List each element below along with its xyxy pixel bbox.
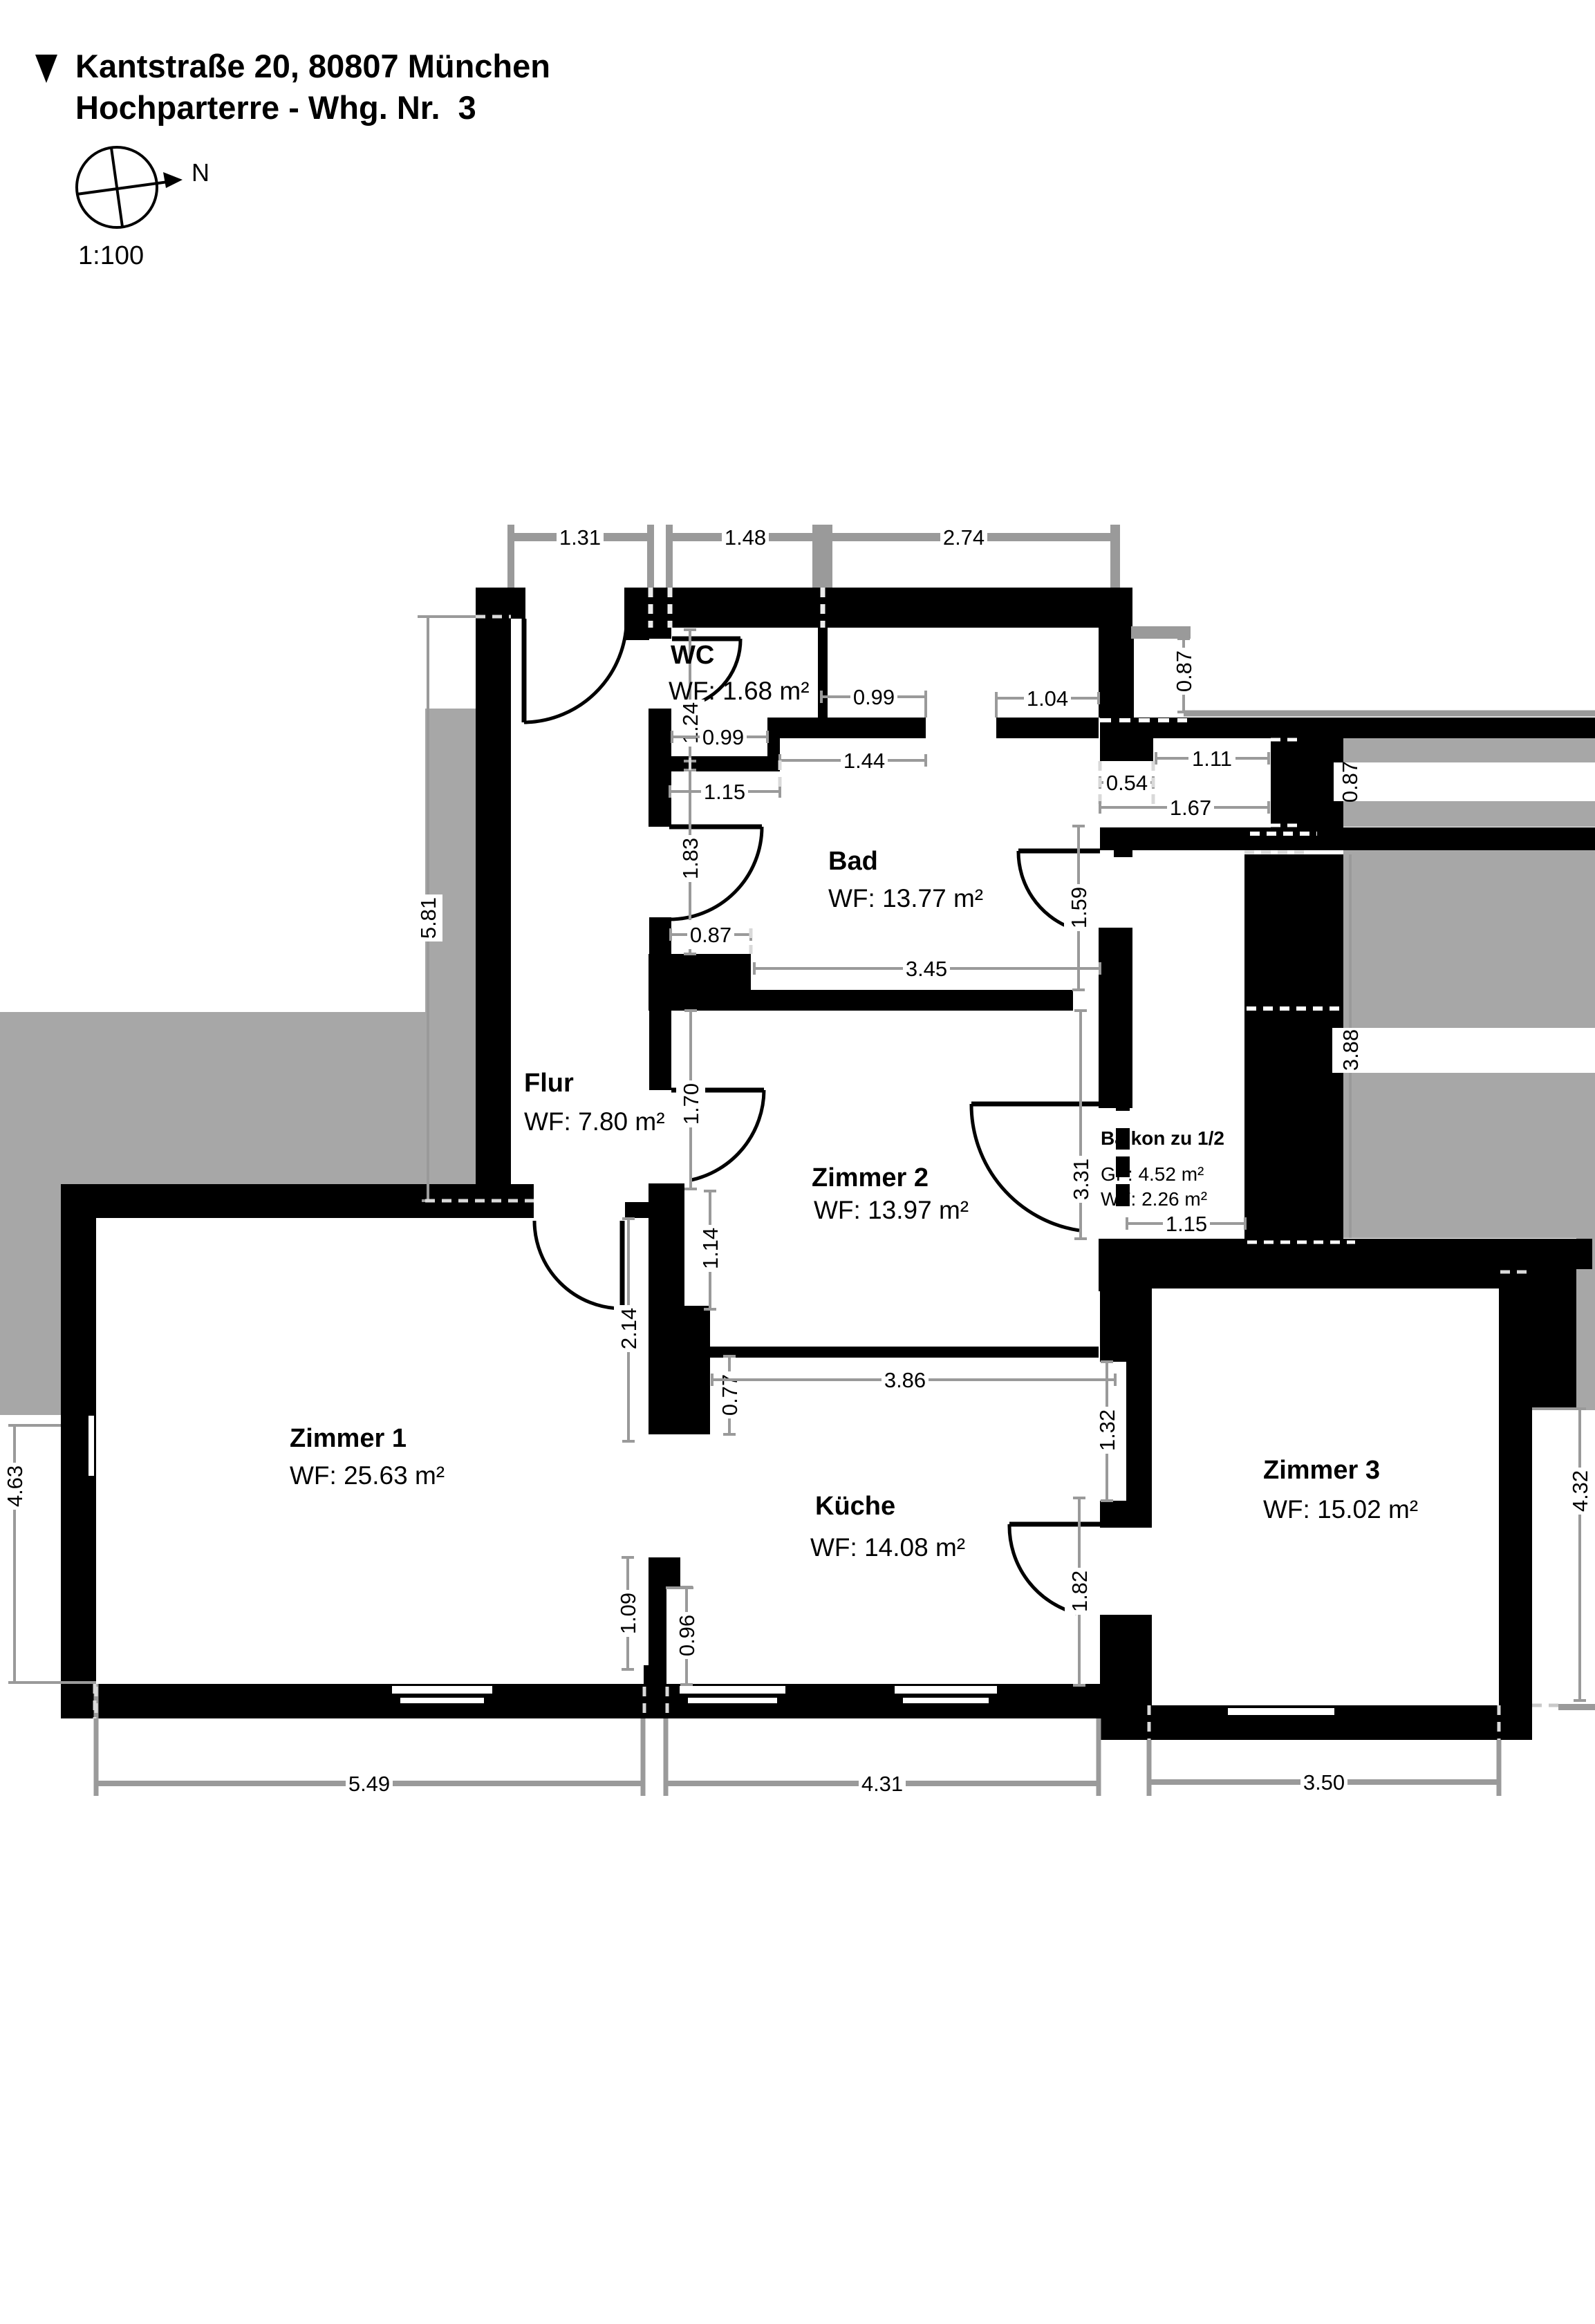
svg-text:3.88: 3.88 (1339, 1029, 1363, 1071)
svg-text:1.14: 1.14 (698, 1228, 722, 1269)
svg-text:1.11: 1.11 (1192, 747, 1232, 771)
svg-text:5.81: 5.81 (416, 897, 440, 939)
svg-text:1.15: 1.15 (704, 780, 745, 804)
svg-text:4.31: 4.31 (861, 1772, 903, 1796)
svg-text:1.67: 1.67 (1170, 796, 1211, 820)
svg-text:1.83: 1.83 (678, 838, 702, 879)
svg-text:0.54: 0.54 (1106, 771, 1148, 795)
svg-text:Hochparterre - Whg. Nr. 3: Hochparterre - Whg. Nr. 3 (75, 89, 476, 126)
svg-text:0.99: 0.99 (853, 685, 895, 709)
svg-text:4.63: 4.63 (3, 1465, 27, 1507)
svg-text:Zimmer 1: Zimmer 1 (290, 1424, 407, 1453)
svg-text:1:100: 1:100 (78, 241, 144, 270)
svg-text:0.87: 0.87 (1338, 761, 1362, 803)
svg-text:Balkon zu 1/2: Balkon zu 1/2 (1101, 1127, 1224, 1149)
svg-text:Zimmer 3: Zimmer 3 (1263, 1456, 1380, 1485)
svg-text:0.87: 0.87 (690, 923, 731, 947)
svg-text:1.04: 1.04 (1027, 686, 1068, 711)
svg-text:Bad: Bad (828, 847, 878, 876)
svg-text:2.74: 2.74 (943, 525, 985, 550)
svg-text:5.49: 5.49 (348, 1772, 390, 1796)
svg-text:0.96: 0.96 (675, 1615, 699, 1656)
svg-text:1.32: 1.32 (1095, 1409, 1119, 1451)
svg-text:Küche: Küche (815, 1492, 895, 1521)
svg-text:WF: 13.77 m²: WF: 13.77 m² (828, 884, 983, 912)
svg-text:WF: 2.26 m²: WF: 2.26 m² (1101, 1188, 1207, 1210)
svg-text:1.09: 1.09 (616, 1593, 640, 1634)
svg-text:WF: 1.68 m²: WF: 1.68 m² (669, 677, 810, 705)
svg-text:N: N (192, 158, 209, 187)
svg-text:1.15: 1.15 (1166, 1212, 1207, 1236)
svg-text:WC: WC (671, 641, 714, 670)
svg-text:WF: 14.08 m²: WF: 14.08 m² (810, 1533, 965, 1562)
svg-text:3.50: 3.50 (1303, 1770, 1345, 1794)
svg-text:1.44: 1.44 (843, 749, 885, 773)
svg-text:WF: 13.97 m²: WF: 13.97 m² (814, 1196, 969, 1224)
svg-text:1.59: 1.59 (1067, 887, 1091, 928)
svg-text:0.87: 0.87 (1172, 650, 1196, 692)
svg-text:3.86: 3.86 (884, 1368, 926, 1392)
svg-text:1.70: 1.70 (679, 1083, 703, 1125)
svg-text:Kantstraße 20, 80807 München: Kantstraße 20, 80807 München (75, 48, 550, 84)
svg-text:WF: 15.02 m²: WF: 15.02 m² (1263, 1495, 1418, 1524)
svg-text:2.14: 2.14 (617, 1308, 641, 1349)
svg-text:Zimmer 2: Zimmer 2 (812, 1163, 929, 1192)
svg-text:4.32: 4.32 (1568, 1470, 1592, 1512)
svg-text:1.82: 1.82 (1067, 1571, 1092, 1612)
svg-text:Flur: Flur (524, 1069, 574, 1098)
svg-text:0.99: 0.99 (702, 725, 744, 749)
svg-text:1.48: 1.48 (725, 525, 766, 550)
svg-text:GF: 4.52 m²: GF: 4.52 m² (1101, 1163, 1204, 1185)
svg-text:3.31: 3.31 (1069, 1159, 1093, 1200)
svg-text:1.31: 1.31 (559, 525, 601, 550)
svg-text:3.45: 3.45 (906, 957, 947, 981)
svg-text:WF: 25.63 m²: WF: 25.63 m² (290, 1461, 445, 1490)
svg-text:WF: 7.80 m²: WF: 7.80 m² (524, 1107, 665, 1136)
